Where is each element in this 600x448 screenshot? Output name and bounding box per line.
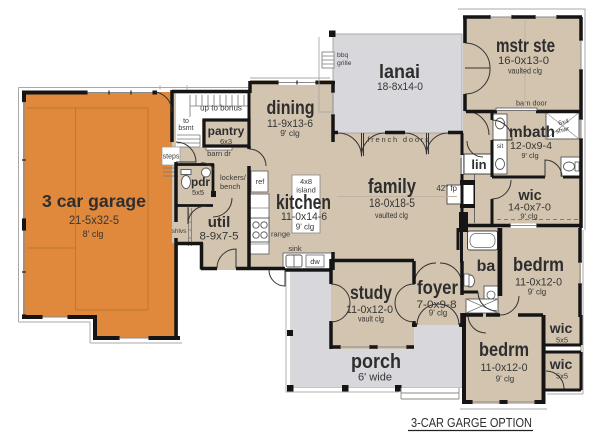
svg-text:vaulted clg: vaulted clg (375, 211, 408, 220)
svg-text:5x5: 5x5 (556, 372, 568, 381)
svg-text:16-0x13-0: 16-0x13-0 (498, 55, 549, 67)
svg-text:vault clg: vault clg (358, 315, 384, 324)
svg-text:9' clg: 9' clg (496, 375, 514, 384)
svg-text:6' wide: 6' wide (358, 372, 392, 384)
svg-text:grille: grille (337, 60, 352, 67)
svg-text:9' clg: 9' clg (521, 151, 538, 160)
svg-text:3 car garage: 3 car garage (42, 191, 146, 211)
svg-text:8' clg: 8' clg (83, 229, 104, 239)
svg-text:lin: lin (471, 157, 486, 172)
svg-text:9' clg: 9' clg (528, 288, 546, 297)
svg-text:dw: dw (310, 257, 320, 266)
svg-text:bsmt: bsmt (178, 125, 193, 132)
svg-text:wic: wic (549, 320, 573, 336)
svg-text:pantry: pantry (208, 124, 245, 138)
svg-text:barn door: barn door (516, 99, 547, 108)
svg-text:9' clg: 9' clg (429, 309, 447, 318)
svg-text:9' clg: 9' clg (296, 223, 314, 232)
svg-text:bbq: bbq (337, 52, 349, 59)
svg-text:sit: sit (497, 143, 504, 150)
svg-text:ba: ba (477, 258, 496, 275)
svg-text:wic: wic (549, 356, 573, 372)
svg-text:study: study (350, 283, 392, 304)
svg-text:bench: bench (220, 182, 240, 191)
svg-text:porch: porch (351, 351, 401, 373)
svg-text:mstr ste: mstr ste (496, 36, 555, 57)
svg-text:sink: sink (288, 244, 302, 253)
svg-text:lanai: lanai (379, 62, 420, 83)
svg-text:barn dr: barn dr (207, 149, 231, 158)
svg-text:bedrm: bedrm (479, 340, 529, 361)
svg-text:range: range (271, 230, 290, 239)
svg-text:3-CAR GARGE OPTION: 3-CAR GARGE OPTION (411, 415, 532, 430)
svg-text:steps: steps (163, 154, 180, 161)
svg-text:11-0x12-0: 11-0x12-0 (481, 362, 528, 374)
svg-text:9' clg: 9' clg (520, 212, 537, 221)
svg-text:up to bonus: up to bonus (200, 104, 242, 113)
svg-text:18-8x14-0: 18-8x14-0 (377, 81, 423, 93)
svg-text:8-9x7-5: 8-9x7-5 (200, 231, 239, 243)
svg-text:shlvs: shlvs (172, 228, 188, 235)
svg-text:42" fp: 42" fp (436, 184, 457, 193)
svg-text:family: family (368, 176, 417, 198)
svg-text:18-0x18-5: 18-0x18-5 (369, 198, 415, 210)
svg-text:lockers/: lockers/ (220, 173, 247, 182)
svg-text:bedrm: bedrm (513, 255, 564, 276)
svg-text:foyer: foyer (417, 278, 459, 299)
svg-text:ref: ref (256, 177, 266, 186)
svg-text:french doors: french doors (367, 135, 430, 144)
svg-text:21-5x32-5: 21-5x32-5 (69, 213, 119, 227)
svg-text:6x3: 6x3 (220, 137, 232, 146)
svg-text:dining: dining (267, 98, 315, 119)
svg-text:5x5: 5x5 (556, 336, 568, 345)
svg-text:mbath: mbath (509, 124, 555, 141)
svg-text:vaulted clg: vaulted clg (508, 67, 542, 76)
svg-text:to: to (183, 118, 189, 125)
svg-text:9' clg: 9' clg (280, 128, 300, 138)
svg-text:11-0x14-6: 11-0x14-6 (281, 211, 327, 223)
svg-text:5x5: 5x5 (192, 188, 204, 197)
